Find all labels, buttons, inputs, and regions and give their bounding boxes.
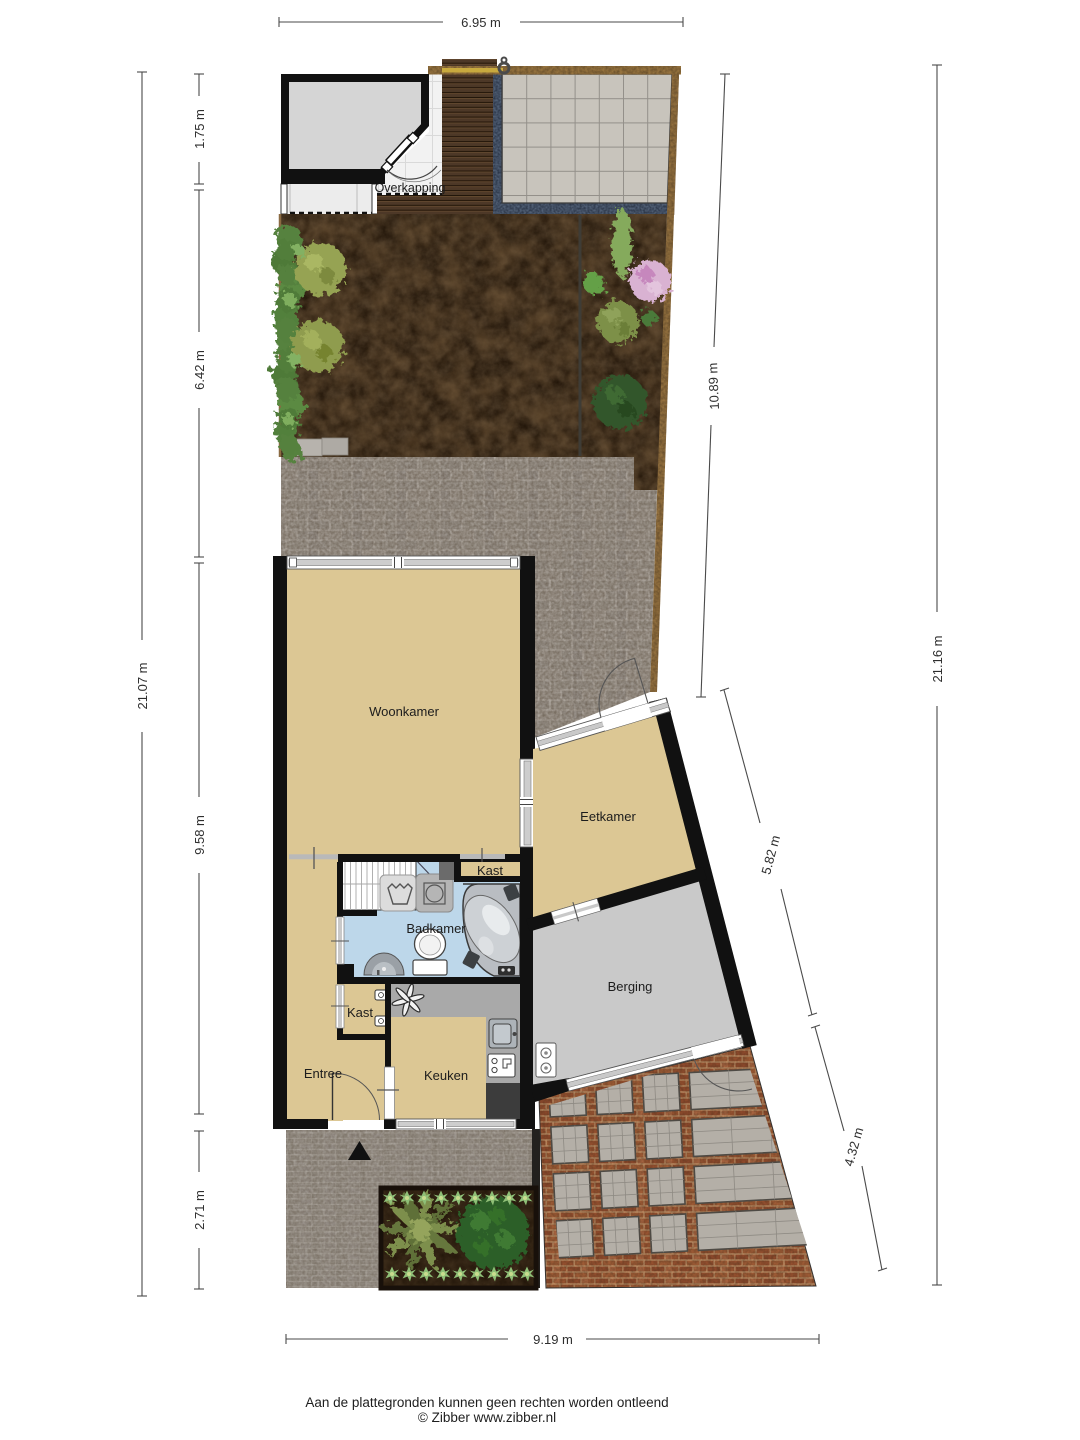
svg-text:6.42 m: 6.42 m — [192, 350, 207, 390]
svg-text:Overkapping: Overkapping — [375, 181, 446, 195]
svg-text:Kast: Kast — [347, 1005, 373, 1020]
svg-text:9.58 m: 9.58 m — [192, 815, 207, 855]
svg-text:© Zibber www.zibber.nl: © Zibber www.zibber.nl — [418, 1410, 556, 1425]
svg-text:21.16 m: 21.16 m — [930, 636, 945, 683]
svg-text:1.75 m: 1.75 m — [192, 109, 207, 149]
svg-text:Woonkamer: Woonkamer — [369, 704, 440, 719]
svg-text:Entree: Entree — [304, 1066, 342, 1081]
svg-text:Keuken: Keuken — [424, 1068, 468, 1083]
svg-text:6.95 m: 6.95 m — [461, 15, 501, 30]
svg-text:Kast: Kast — [477, 863, 503, 878]
svg-text:Aan de plattegronden kunnen ge: Aan de plattegronden kunnen geen rechten… — [305, 1395, 668, 1410]
svg-text:Badkamer: Badkamer — [406, 921, 466, 936]
svg-text:9.19 m: 9.19 m — [533, 1332, 573, 1347]
svg-text:10.89 m: 10.89 m — [705, 362, 722, 410]
svg-text:2.71 m: 2.71 m — [192, 1190, 207, 1230]
svg-text:Eetkamer: Eetkamer — [580, 809, 636, 824]
svg-text:21.07 m: 21.07 m — [135, 663, 150, 710]
svg-text:Berging: Berging — [608, 979, 653, 994]
